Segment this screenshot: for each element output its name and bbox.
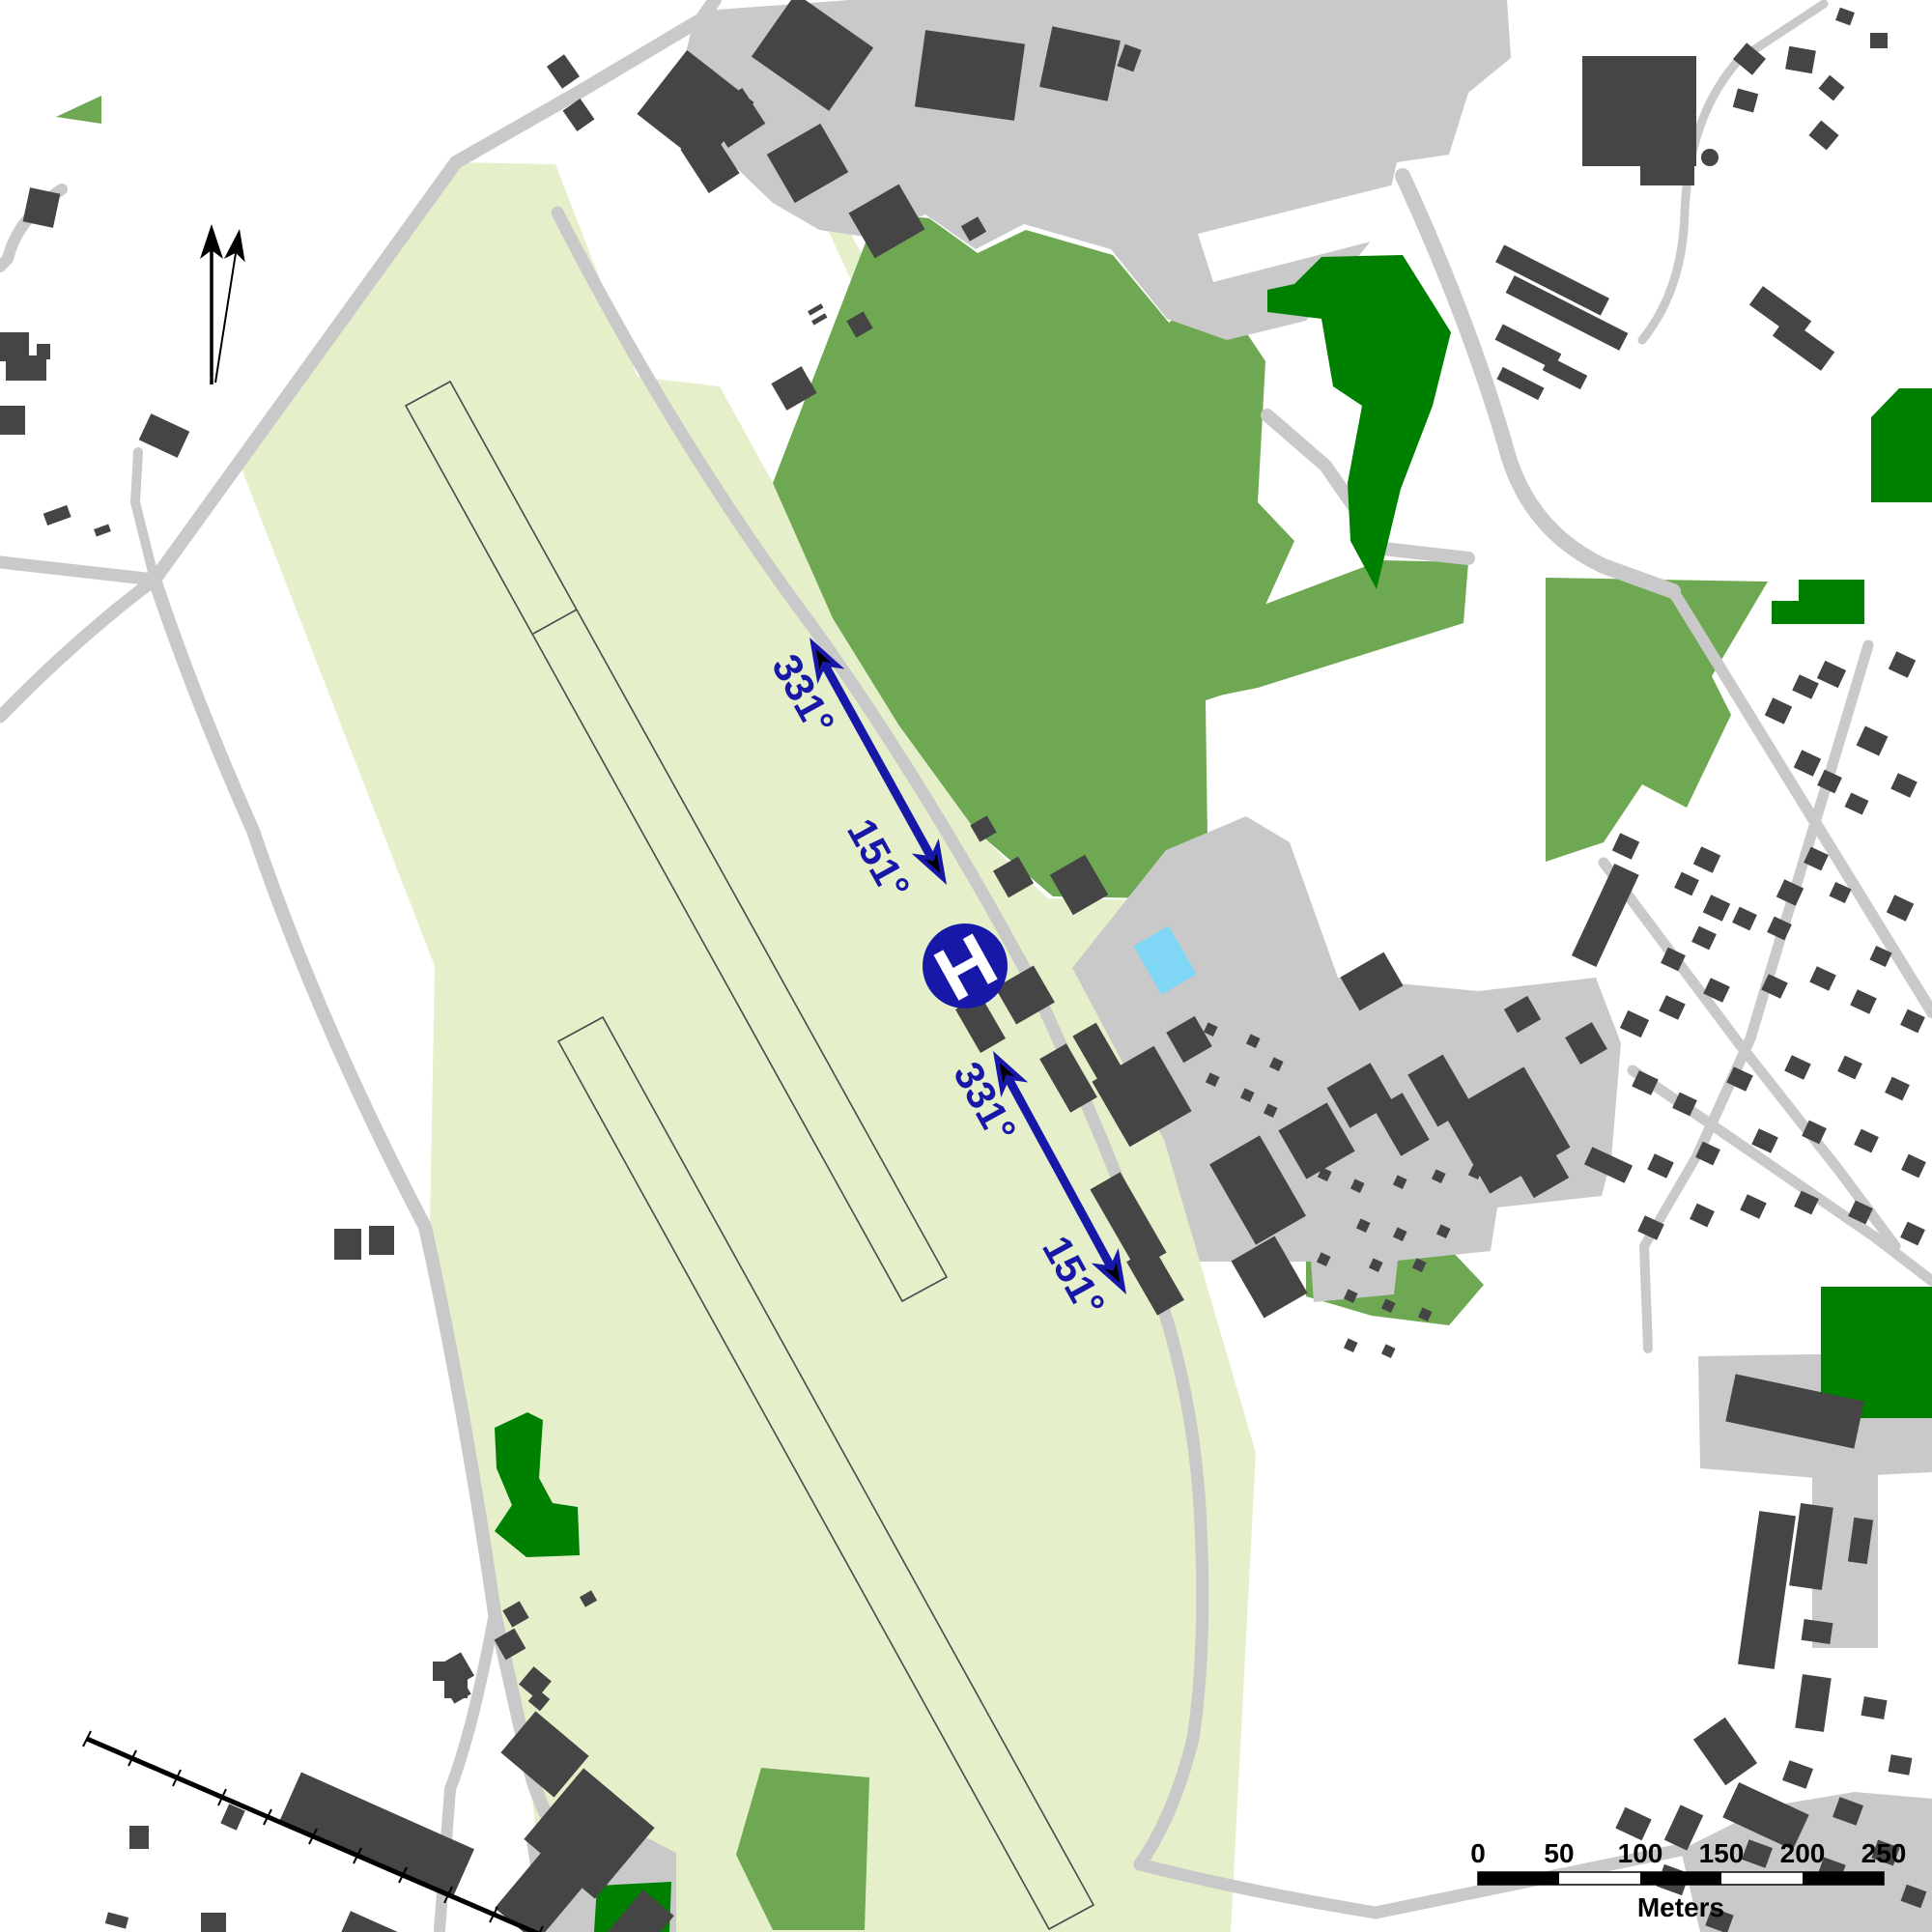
scale-tick-label: 50 bbox=[1544, 1838, 1574, 1868]
building bbox=[37, 344, 50, 359]
scale-bar-segment bbox=[1803, 1872, 1884, 1885]
building bbox=[1861, 1696, 1887, 1719]
building bbox=[0, 406, 25, 435]
building bbox=[1802, 1619, 1833, 1644]
scale-tick-label: 200 bbox=[1780, 1838, 1826, 1868]
scale-tick-label: 100 bbox=[1618, 1838, 1663, 1868]
building bbox=[1785, 46, 1816, 73]
scale-tick-label: 150 bbox=[1699, 1838, 1745, 1868]
map-page: 331° 151° 331° 151° H 0 50 100 150 200 2… bbox=[0, 0, 1932, 1932]
scale-bar-segment bbox=[1478, 1872, 1559, 1885]
building bbox=[129, 1826, 149, 1849]
scale-tick-label: 250 bbox=[1861, 1838, 1907, 1868]
building bbox=[915, 30, 1025, 121]
scale-unit-label: Meters bbox=[1637, 1892, 1724, 1922]
building bbox=[201, 1913, 226, 1932]
building bbox=[369, 1226, 394, 1255]
map-canvas: 331° 151° 331° 151° H 0 50 100 150 200 2… bbox=[0, 0, 1932, 1932]
building bbox=[1640, 164, 1694, 185]
scale-bar-segment bbox=[1640, 1872, 1721, 1885]
scale-tick-label: 0 bbox=[1470, 1838, 1486, 1868]
building bbox=[1870, 33, 1888, 48]
building bbox=[334, 1229, 361, 1260]
building bbox=[1701, 149, 1719, 166]
building bbox=[1582, 56, 1696, 166]
building bbox=[1889, 1754, 1913, 1776]
